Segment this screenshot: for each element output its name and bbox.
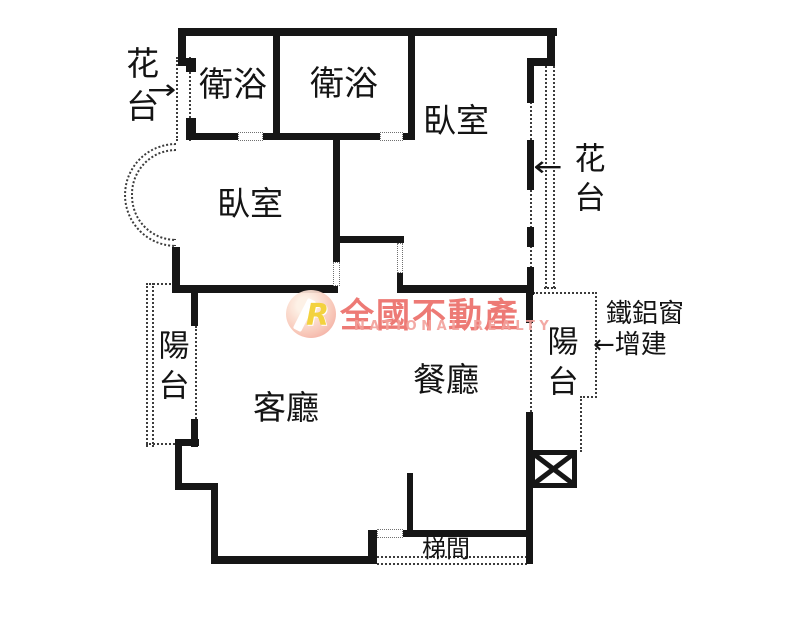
addition-text: 增建: [615, 330, 667, 360]
label-bath1: 衛浴: [199, 68, 267, 104]
label-bath2: 衛浴: [310, 67, 378, 103]
label-living: 客廳: [253, 391, 319, 426]
label-balcony-left: 陽台: [154, 329, 187, 409]
label-bedroom-right: 臥室: [423, 104, 489, 139]
wall: [186, 58, 196, 72]
addition-outline: [580, 396, 597, 398]
label-flowerbed-right: 花台: [570, 142, 603, 220]
wall: [333, 140, 340, 262]
wall: [211, 556, 377, 564]
label-iron-window: 鐵鋁窗: [606, 301, 684, 328]
wall: [368, 530, 377, 564]
wall: [273, 33, 280, 140]
flowerbed-right-outline: [544, 287, 556, 289]
label-bedroom-left: 臥室: [217, 187, 283, 222]
wall: [186, 118, 196, 140]
label-dining: 餐廳: [413, 363, 479, 398]
wall: [211, 483, 218, 564]
door-stairwell: [377, 529, 403, 538]
door-bath1: [238, 132, 263, 141]
realty-logo-icon: R: [286, 290, 336, 338]
balcony-left-outline: [146, 283, 148, 447]
wall: [403, 133, 415, 140]
label-balcony-right: 陽台: [543, 325, 576, 405]
stairwell-outline: [377, 563, 527, 565]
arrow-right-icon: →: [147, 76, 176, 104]
wall: [526, 412, 533, 564]
door-bedroom-right: [397, 243, 403, 273]
wall: [407, 473, 413, 531]
wall: [172, 247, 180, 293]
watermark-brand-en: NATIONAL REALTY: [354, 319, 553, 334]
label-stairwell: 梯間: [422, 537, 470, 562]
door-bedroom-left: [333, 262, 340, 286]
wall: [408, 31, 415, 140]
arrow-left-icon: ←: [533, 153, 562, 181]
elevator-symbol: [530, 450, 577, 488]
window-west: [195, 326, 197, 419]
logo-letter: R: [306, 298, 329, 333]
wall: [338, 236, 404, 243]
addition-outline: [533, 292, 597, 294]
wall: [191, 293, 198, 326]
wall: [527, 58, 534, 103]
label-addition: ←增建: [593, 332, 667, 359]
wall: [263, 133, 380, 140]
wall: [178, 28, 557, 36]
addition-outline: [580, 396, 582, 452]
arrow-left-icon: ←: [593, 330, 615, 360]
door-bath2: [380, 132, 403, 141]
floor-plan: 花台 → 衛浴 衛浴 臥室 花台 ← 臥室 陽台 陽台 鐵鋁窗 ←增建 餐廳 客…: [0, 0, 800, 622]
wall: [527, 227, 534, 247]
wall: [178, 28, 186, 66]
elevator-x-icon: [535, 455, 572, 483]
